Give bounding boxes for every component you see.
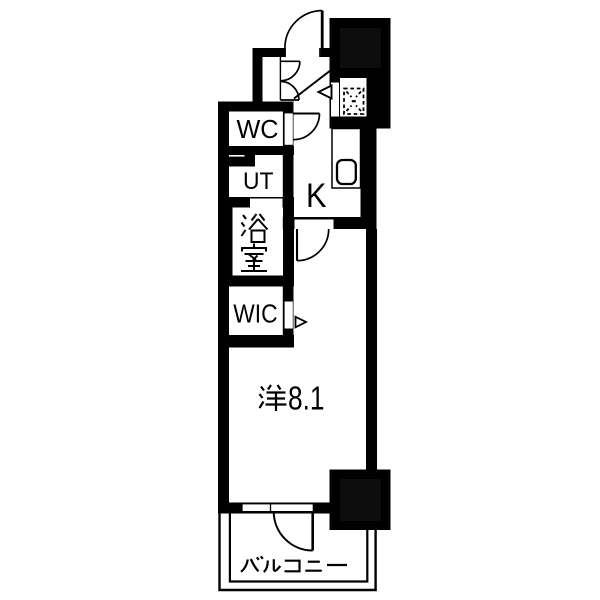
- svg-text:WIC: WIC: [233, 299, 277, 329]
- svg-text:UT: UT: [243, 168, 274, 195]
- svg-text:WC: WC: [237, 114, 279, 144]
- svg-text:8.1: 8.1: [288, 380, 325, 417]
- svg-text:K: K: [306, 177, 327, 215]
